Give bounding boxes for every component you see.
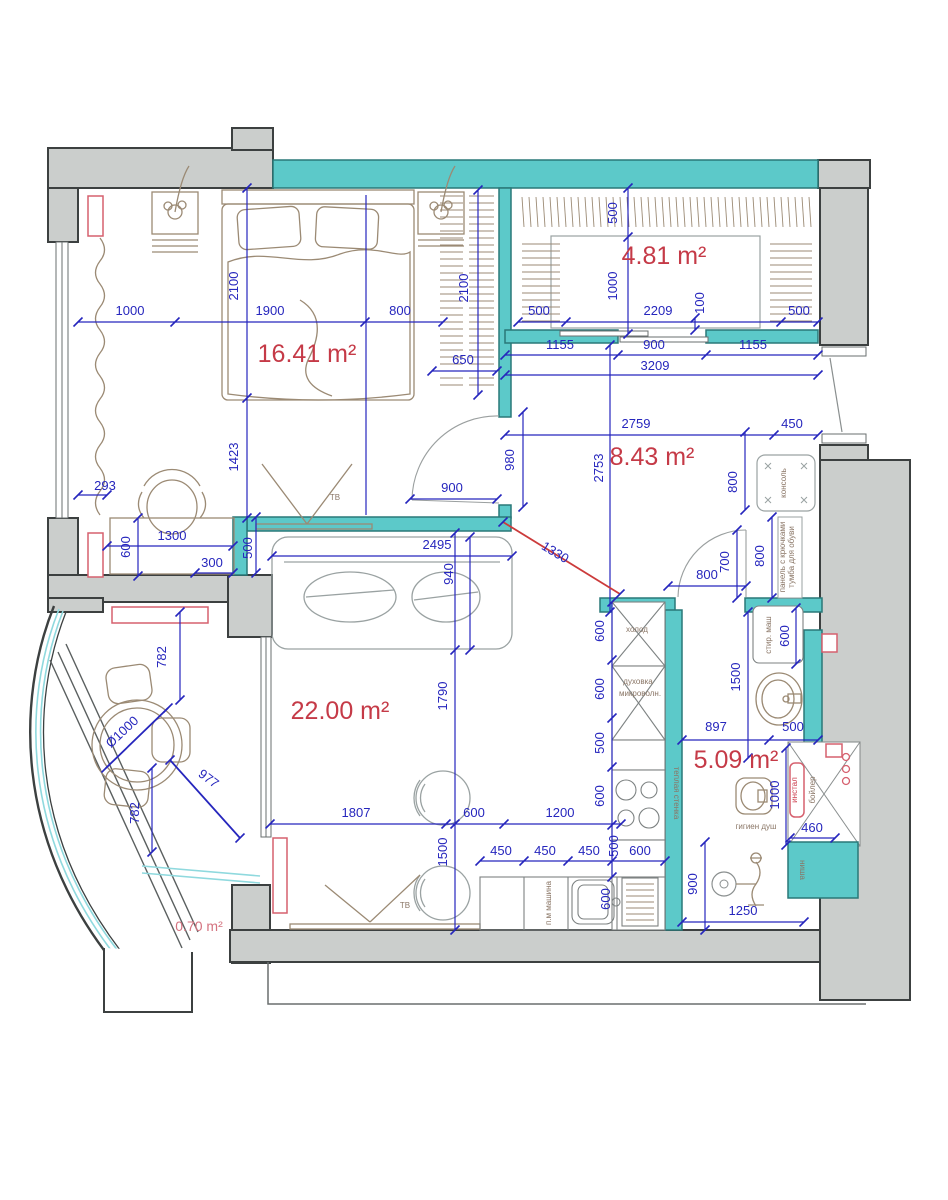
dimension-label: 2753 (591, 454, 606, 483)
annotation-label: гигиен душ (736, 822, 777, 831)
chair (416, 866, 470, 920)
dimension-label: 2209 (644, 303, 673, 318)
dimension-label: 450 (578, 843, 600, 858)
annotation-label: ниша (798, 860, 807, 880)
wardrobe-hatch (676, 197, 678, 227)
wardrobe-hatch (795, 197, 797, 227)
wardrobe-hatch (634, 197, 636, 227)
wardrobe-hatch (802, 197, 804, 227)
dimension-label: 800 (389, 303, 411, 318)
dimension-label: 600 (629, 843, 651, 858)
dimension-label: 1000 (116, 303, 145, 318)
annotation-label: микроволн. (619, 689, 661, 698)
annotation-label: п.м машина (544, 880, 553, 925)
dimension-label: 800 (752, 545, 767, 567)
dimension-label: 782 (154, 646, 169, 668)
tv-stand (290, 924, 480, 929)
dimension-label: 293 (94, 478, 116, 493)
dimension-label: 450 (534, 843, 556, 858)
towel-dryer (822, 634, 837, 652)
wardrobe-hatch (648, 197, 650, 227)
wardrobe-hatch (809, 197, 811, 227)
wardrobe-hatch (746, 197, 748, 227)
dimension-label: 1807 (342, 805, 371, 820)
wardrobe-hatch (536, 197, 538, 227)
dimension-label: 600 (463, 805, 485, 820)
dimension-label: 600 (598, 888, 613, 910)
dimension-label: Ø1000 (103, 713, 142, 751)
wardrobe-hatch (697, 197, 699, 227)
dimension-label: 450 (490, 843, 512, 858)
dimension-label: 900 (441, 480, 463, 495)
room-area-label: 0.70 m² (175, 918, 223, 934)
dimension-label: 600 (592, 785, 607, 807)
wardrobe-hatch (641, 197, 643, 227)
dimension-label: 600 (592, 620, 607, 642)
annotation-label: панель с крючками (778, 522, 787, 593)
lower-apartment-outline (268, 962, 866, 1004)
dimension-label: 500 (788, 303, 810, 318)
radiator (88, 196, 103, 236)
wardrobe-hatch (732, 197, 734, 227)
dimension-label: 1500 (728, 663, 743, 692)
room-area-label: 16.41 m² (258, 340, 357, 368)
annotation-label: холод (626, 625, 648, 634)
dimension-label: 1250 (729, 903, 758, 918)
wardrobe-hatch (585, 197, 587, 227)
dimension-label: 900 (685, 873, 700, 895)
dimension-label: 2100 (226, 272, 241, 301)
wardrobe-hatch (592, 197, 594, 227)
annotation-label: теплая стенка (672, 767, 681, 820)
dimension-label: 600 (592, 678, 607, 700)
balcony-chair (105, 663, 154, 705)
floor-plan-page: 1000190080021002100650142329313006003005… (0, 0, 948, 1200)
dimension-label: 500 (782, 719, 804, 734)
room-area-label: 8.43 m² (610, 443, 695, 471)
bed (222, 204, 414, 400)
dimension-label: 500 (240, 537, 255, 559)
wardrobe-hatch (529, 197, 531, 227)
radiator (112, 607, 208, 623)
bathroom-door-arc (678, 530, 746, 597)
dimension-label: 1423 (226, 443, 241, 472)
dimension-label: 1000 (767, 781, 782, 810)
wardrobe-hatch (753, 197, 755, 227)
wardrobe-sliding-door (560, 331, 648, 336)
wardrobe-hatch (620, 197, 622, 227)
dimension-label: 1155 (546, 337, 574, 352)
balcony-chair (152, 718, 190, 762)
dimension-label: 900 (643, 337, 665, 352)
dimension-label: 2759 (622, 416, 651, 431)
curtain (96, 238, 105, 515)
annotation-label: инстал (790, 777, 799, 803)
washbasin (756, 673, 802, 725)
dimension-label: 1300 (158, 528, 187, 543)
dimension-label: 2100 (456, 274, 471, 303)
dimension-label: 600 (118, 536, 133, 558)
wardrobe-hatch (599, 197, 601, 227)
dimension-label: 700 (717, 551, 732, 573)
annotation-label: бойлер (808, 776, 817, 804)
wardrobe-hatch (739, 197, 741, 227)
sofa-cushion (304, 572, 396, 622)
chair (416, 771, 470, 825)
annotation-label: ТВ (400, 901, 410, 910)
dimension-label: 800 (725, 471, 740, 493)
dimension-label: 600 (777, 625, 792, 647)
room-area-label: 5.09 m² (694, 746, 779, 774)
dimension-label: 1155 (739, 337, 767, 352)
radiator (88, 533, 103, 577)
annotation-label: консоль (779, 468, 788, 498)
wardrobe-hatch (522, 197, 524, 227)
wardrobe-hatch (669, 197, 671, 227)
wardrobe-hatch (564, 197, 566, 227)
wardrobe-hatch (578, 197, 580, 227)
wardrobe-hatch (571, 197, 573, 227)
dimension-label: 1900 (256, 303, 285, 318)
wardrobe-hatch (725, 197, 727, 227)
mixer-fixture (826, 744, 842, 757)
hob (612, 770, 665, 840)
pillow (237, 206, 302, 250)
annotation-label: тумба для обуви (787, 526, 796, 588)
pillow (315, 206, 379, 249)
wardrobe-hatch (774, 197, 776, 227)
dimension-label: 300 (201, 555, 223, 570)
shower-drain (712, 872, 736, 896)
dimension-label: 500 (528, 303, 550, 318)
dimension-label: 500 (605, 202, 620, 224)
entrance-door-opening (822, 347, 866, 443)
bedroom-furniture (96, 166, 465, 574)
wardrobe-hatch (718, 197, 720, 227)
wardrobe-hatch (543, 197, 545, 227)
wardrobe-hatch (662, 197, 664, 227)
radiator (273, 838, 287, 913)
nightstand (152, 192, 198, 234)
floor-plan-drawing: 1000190080021002100650142329313006003005… (0, 0, 948, 1200)
dimension-label: 1200 (546, 805, 575, 820)
dimension-label: 3209 (641, 358, 670, 373)
dimension-label: 940 (441, 563, 456, 585)
dimension-label: 450 (781, 416, 803, 431)
dim-tick (616, 590, 625, 599)
dimension-label: 500 (606, 835, 621, 857)
dimension-label: 800 (696, 567, 718, 582)
annotation-label: стир. маш (764, 616, 773, 653)
dimension-label: 650 (452, 352, 474, 367)
wardrobe-hatch (683, 197, 685, 227)
dimension-label: 500 (592, 732, 607, 754)
dimension-label: 1790 (435, 682, 450, 711)
dim-tick (164, 704, 173, 713)
balcony-shell (30, 606, 260, 1012)
dimension-label: 782 (127, 802, 142, 824)
room-area-label: 22.00 m² (291, 697, 390, 725)
dimension-label: 1500 (435, 838, 450, 867)
blanket (228, 250, 410, 400)
dimension-label: 460 (801, 820, 823, 835)
wardrobe-hatch (767, 197, 769, 227)
sofa (272, 537, 512, 649)
wardrobe-hatch (781, 197, 783, 227)
dimension-label: 980 (502, 449, 517, 471)
bed-headboard (222, 190, 414, 204)
dimension-label: 977 (196, 766, 222, 791)
wardrobe-hatch (655, 197, 657, 227)
room-area-label: 4.81 m² (622, 242, 707, 270)
wardrobe-hatch (760, 197, 762, 227)
wardrobe-hatch (550, 197, 552, 227)
dimension-label: 100 (692, 292, 707, 314)
nightstand (418, 192, 464, 234)
wardrobe-hatch (690, 197, 692, 227)
annotation-label: ТВ (330, 493, 340, 502)
wardrobe-hatch (557, 197, 559, 227)
wardrobe-hatch (704, 197, 706, 227)
wardrobe-hatch (711, 197, 713, 227)
dimension-label: 2495 (423, 537, 452, 552)
wardrobe-hatch (788, 197, 790, 227)
dimension-label: 1000 (605, 272, 620, 301)
desk-chair (147, 480, 197, 534)
annotation-label: духовка (623, 677, 653, 686)
dimension-label: 897 (705, 719, 727, 734)
